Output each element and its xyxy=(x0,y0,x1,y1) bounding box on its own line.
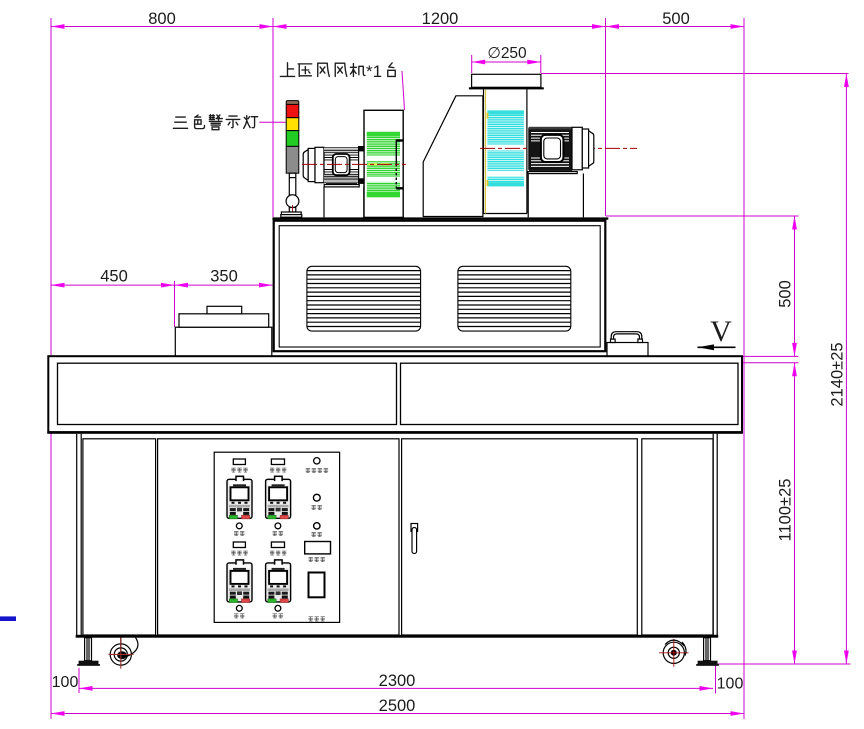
svg-text:450: 450 xyxy=(100,268,128,286)
svg-text:500: 500 xyxy=(777,280,795,308)
svg-text:800: 800 xyxy=(148,10,176,28)
svg-text:350: 350 xyxy=(210,268,238,286)
svg-text:2140±25: 2140±25 xyxy=(828,342,846,406)
svg-text:500: 500 xyxy=(662,10,690,28)
svg-text:100: 100 xyxy=(717,676,744,693)
svg-text:100: 100 xyxy=(52,674,79,691)
svg-text:∅250: ∅250 xyxy=(487,45,527,62)
svg-text:1200: 1200 xyxy=(422,10,459,28)
svg-text:1100±25: 1100±25 xyxy=(777,479,795,542)
svg-text:2500: 2500 xyxy=(379,697,416,715)
svg-text:*1: *1 xyxy=(366,62,382,81)
svg-text:V: V xyxy=(710,315,732,348)
svg-text:2300: 2300 xyxy=(379,672,416,690)
